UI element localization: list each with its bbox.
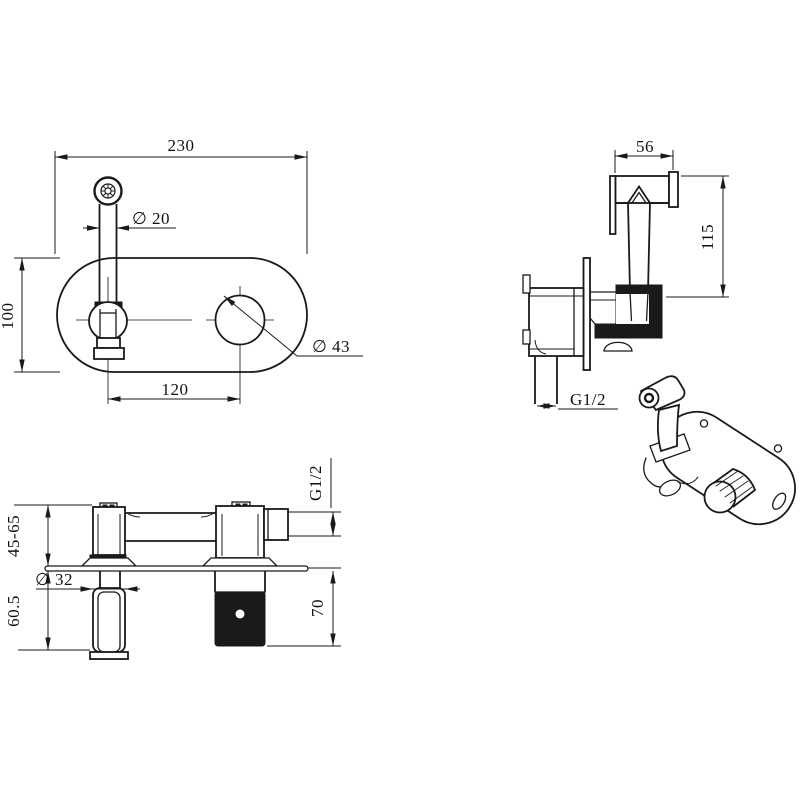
dim-230: 230 — [55, 136, 307, 254]
mounting-stud-top — [523, 275, 530, 293]
set-screw-dot — [236, 610, 245, 619]
dim-label-inlet-thread: G1/2 — [570, 390, 606, 409]
hose-nut — [604, 342, 632, 351]
dim-label-plate-height: 100 — [0, 303, 17, 330]
sprayer-head — [610, 172, 678, 292]
dim-120: 120 — [108, 380, 240, 399]
fork-3d — [644, 458, 665, 487]
bidet-mixer-technical-drawing: 230 ∅ 20 100 ∅ 43 120 — [0, 0, 800, 800]
lever-flange — [97, 338, 120, 348]
sprayer-holder — [590, 285, 662, 351]
handle-valve-body — [90, 503, 126, 561]
view-side-sprayer: 56 115 G1/2 — [523, 137, 729, 409]
dim-56: 56 — [615, 137, 673, 173]
dim-label-head-width: 56 — [636, 137, 654, 156]
dim-d32: ∅ 32 — [35, 570, 140, 589]
dim-45-65: 45-65 — [4, 505, 92, 566]
dim-label-hole-spacing: 120 — [162, 380, 189, 399]
dim-label-outlet-thread: G1/2 — [306, 465, 325, 501]
dim-label-sprayer-height: 115 — [698, 224, 717, 250]
dim-label-handle-diameter: ∅ 32 — [35, 570, 73, 589]
dim-label-wall-depth: 45-65 — [4, 515, 23, 557]
valve-box — [215, 571, 265, 646]
dim-label-hole-diameter: ∅ 43 — [312, 337, 350, 356]
view-plan-front: 230 ∅ 20 100 ∅ 43 120 — [0, 136, 363, 404]
dim-label-handle-drop: 60.5 — [4, 595, 23, 627]
technical-drawing-sheet: 230 ∅ 20 100 ∅ 43 120 — [0, 0, 800, 800]
screw-boss-right — [774, 445, 781, 452]
right-flange — [203, 558, 277, 566]
view-perspective — [640, 376, 800, 538]
dim-g12-inlet: G1/2 — [537, 390, 618, 409]
dim-label-box-depth: 70 — [308, 599, 327, 617]
escutcheon-plate — [584, 258, 591, 370]
valve-hole — [216, 296, 265, 345]
ball-joint — [89, 302, 127, 340]
dim-70: 70 — [267, 568, 341, 646]
left-flange — [82, 558, 136, 566]
outlet-valve-body — [216, 502, 288, 558]
sprayer-handle-3d — [658, 405, 679, 451]
dim-g12-outlet: G1/2 — [288, 458, 341, 536]
wall-valve-body — [523, 258, 590, 404]
nozzle-3d — [640, 389, 659, 408]
dim-d20: ∅ 20 — [83, 209, 176, 228]
screw-boss-left — [700, 420, 707, 427]
view-side-installation: G1/2 45-65 60.5 ∅ 32 70 — [4, 458, 341, 659]
trim-plate — [45, 566, 308, 571]
mounting-stud-bottom — [523, 330, 530, 344]
control-handle — [90, 571, 128, 659]
dim-100: 100 — [0, 258, 60, 372]
dim-label-spout-diameter: ∅ 20 — [132, 209, 170, 228]
connecting-pipe — [125, 513, 216, 541]
dim-label-plate-width: 230 — [168, 136, 195, 155]
